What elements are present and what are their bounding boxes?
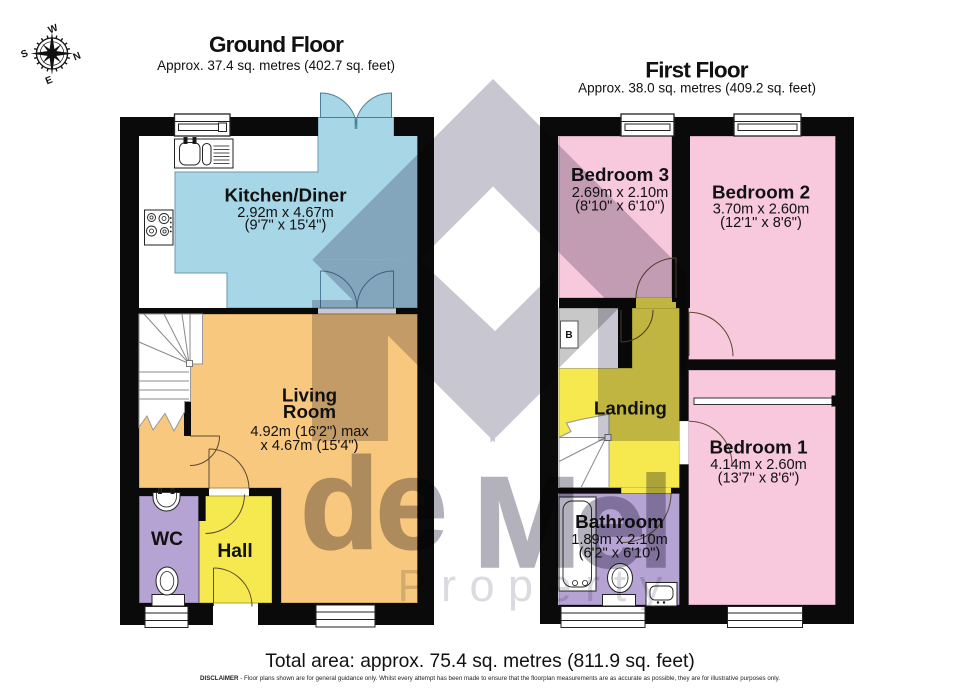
svg-text:(8'10" x 6'10"): (8'10" x 6'10") [575, 199, 665, 215]
svg-text:Kitchen/Diner: Kitchen/Diner [224, 185, 347, 206]
svg-text:Bedroom 2: Bedroom 2 [712, 181, 810, 202]
svg-text:Landing: Landing [594, 397, 667, 418]
svg-text:DISCLAIMER - Floor plans show: DISCLAIMER - Floor plans shown are for g… [200, 675, 780, 682]
svg-text:Hall: Hall [217, 541, 252, 562]
svg-text:Bedroom 3: Bedroom 3 [571, 164, 669, 185]
svg-text:Ground Floor: Ground Floor [209, 32, 344, 57]
svg-text:B: B [565, 330, 572, 341]
svg-text:Approx. 38.0 sq. metres (409.2: Approx. 38.0 sq. metres (409.2 sq. feet) [578, 81, 816, 96]
svg-text:de: de [300, 431, 444, 577]
svg-text:Bedroom 1: Bedroom 1 [709, 437, 807, 458]
svg-text:Approx. 37.4 sq. metres (402.7: Approx. 37.4 sq. metres (402.7 sq. feet) [157, 58, 395, 73]
svg-text:Room: Room [283, 401, 336, 422]
svg-text:WC: WC [151, 529, 183, 550]
svg-text:(13'7" x 8'6"): (13'7" x 8'6") [718, 470, 800, 486]
svg-text:Total area: approx. 75.4 sq. m: Total area: approx. 75.4 sq. metres (811… [265, 651, 694, 672]
svg-text:(12'1" x 8'6"): (12'1" x 8'6") [720, 215, 802, 231]
svg-text:First Floor: First Floor [645, 58, 748, 83]
svg-text:(9'7" x 15'4"): (9'7" x 15'4") [245, 218, 327, 234]
svg-text:Property: Property [398, 560, 676, 611]
